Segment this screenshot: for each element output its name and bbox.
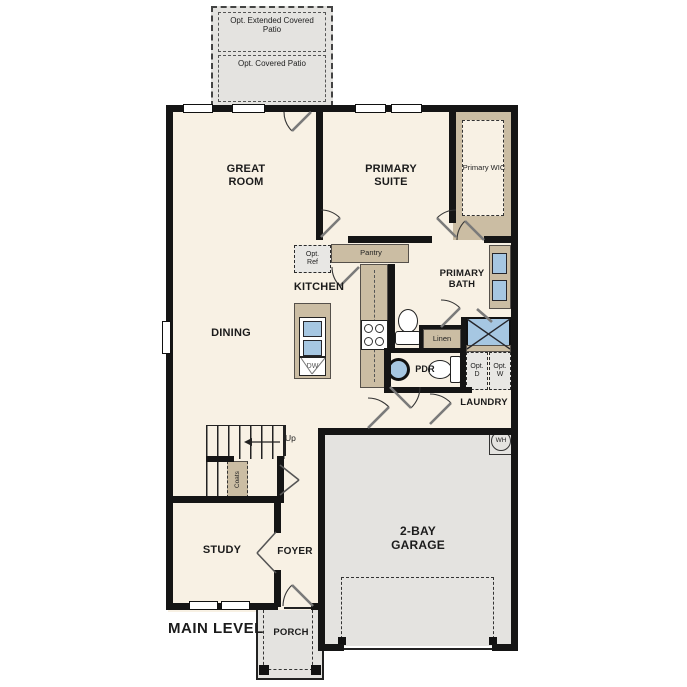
window xyxy=(232,104,265,113)
burner xyxy=(364,337,373,346)
opt-washer-box: Opt. W xyxy=(489,352,511,390)
garage-door-line xyxy=(344,648,492,650)
wall xyxy=(384,348,464,353)
toilet-tank xyxy=(395,331,421,345)
burner xyxy=(375,337,384,346)
stairs-upper-run xyxy=(206,425,285,459)
dw-label: DW xyxy=(307,363,319,371)
burner xyxy=(364,324,373,333)
covered-patio-label: Opt. Covered Patio xyxy=(222,60,322,69)
wall xyxy=(274,503,281,533)
window xyxy=(162,321,171,354)
window xyxy=(189,601,218,610)
wall xyxy=(166,105,518,112)
primary-suite-label: PRIMARY SUITE xyxy=(356,163,426,189)
wall xyxy=(492,644,518,651)
primary-bath-label: PRIMARY BATH xyxy=(432,268,492,290)
wall xyxy=(511,105,518,651)
study-label: STUDY xyxy=(192,544,252,557)
opt-w-label: Opt. W xyxy=(492,363,508,379)
pdr-label: PDR xyxy=(408,364,442,375)
window xyxy=(355,104,386,113)
wall xyxy=(166,496,284,503)
window xyxy=(221,601,250,610)
wall xyxy=(384,387,472,393)
extended-patio-label: Opt. Extended Covered Patio xyxy=(222,17,322,35)
dining-label: DINING xyxy=(201,327,261,340)
vanity-sink xyxy=(492,253,507,274)
burner xyxy=(375,324,384,333)
up-label: Up xyxy=(285,434,305,444)
toilet xyxy=(398,309,418,333)
opt-ref-label: Opt. Ref xyxy=(301,251,325,267)
pantry-label: Pantry xyxy=(341,249,401,257)
wall xyxy=(206,456,234,462)
wall xyxy=(166,105,173,610)
door-sill xyxy=(284,607,311,609)
wall xyxy=(348,236,432,243)
wall xyxy=(274,570,281,607)
garage-door-outline xyxy=(341,577,494,644)
floor-plan: Opt. Extended Covered Patio Opt. Covered… xyxy=(0,0,687,687)
wh-label: WH xyxy=(496,437,507,444)
coats-closet: Coats xyxy=(227,461,248,498)
wall xyxy=(318,428,325,651)
wall xyxy=(484,236,511,243)
porch-post xyxy=(259,665,269,675)
wall xyxy=(419,325,463,329)
wall xyxy=(316,105,323,240)
vanity-sink xyxy=(492,280,507,301)
sink-basin xyxy=(303,321,322,337)
great-room-label: GREAT ROOM xyxy=(211,163,281,189)
wall xyxy=(388,264,395,348)
opt-d-label: Opt. D xyxy=(469,363,485,379)
main-level-label: MAIN LEVEL xyxy=(168,620,298,638)
opt-dryer-box: Opt. D xyxy=(466,352,488,390)
linen-closet: Linen xyxy=(423,329,461,350)
sink-basin xyxy=(303,340,322,356)
kitchen-label: KITCHEN xyxy=(284,281,354,294)
wall xyxy=(318,428,518,435)
wall xyxy=(461,317,466,350)
coats-label: Coats xyxy=(234,471,241,488)
laundry-label: LAUNDRY xyxy=(452,397,516,408)
window xyxy=(391,104,422,113)
porch-dashed-outline xyxy=(263,610,313,670)
porch-post xyxy=(311,665,321,675)
window xyxy=(183,104,213,113)
dishwasher: DW xyxy=(299,357,326,376)
wall xyxy=(460,348,466,393)
wall xyxy=(449,105,456,223)
laundry-counter xyxy=(466,345,511,352)
foyer-label: FOYER xyxy=(267,546,323,558)
opt-ref-box: Opt. Ref xyxy=(294,245,331,273)
primary-wic-label: Primary WIC xyxy=(457,164,511,172)
wall xyxy=(384,348,391,392)
linen-label: Linen xyxy=(433,335,451,343)
garage-label: 2-BAY GARAGE xyxy=(373,524,463,552)
